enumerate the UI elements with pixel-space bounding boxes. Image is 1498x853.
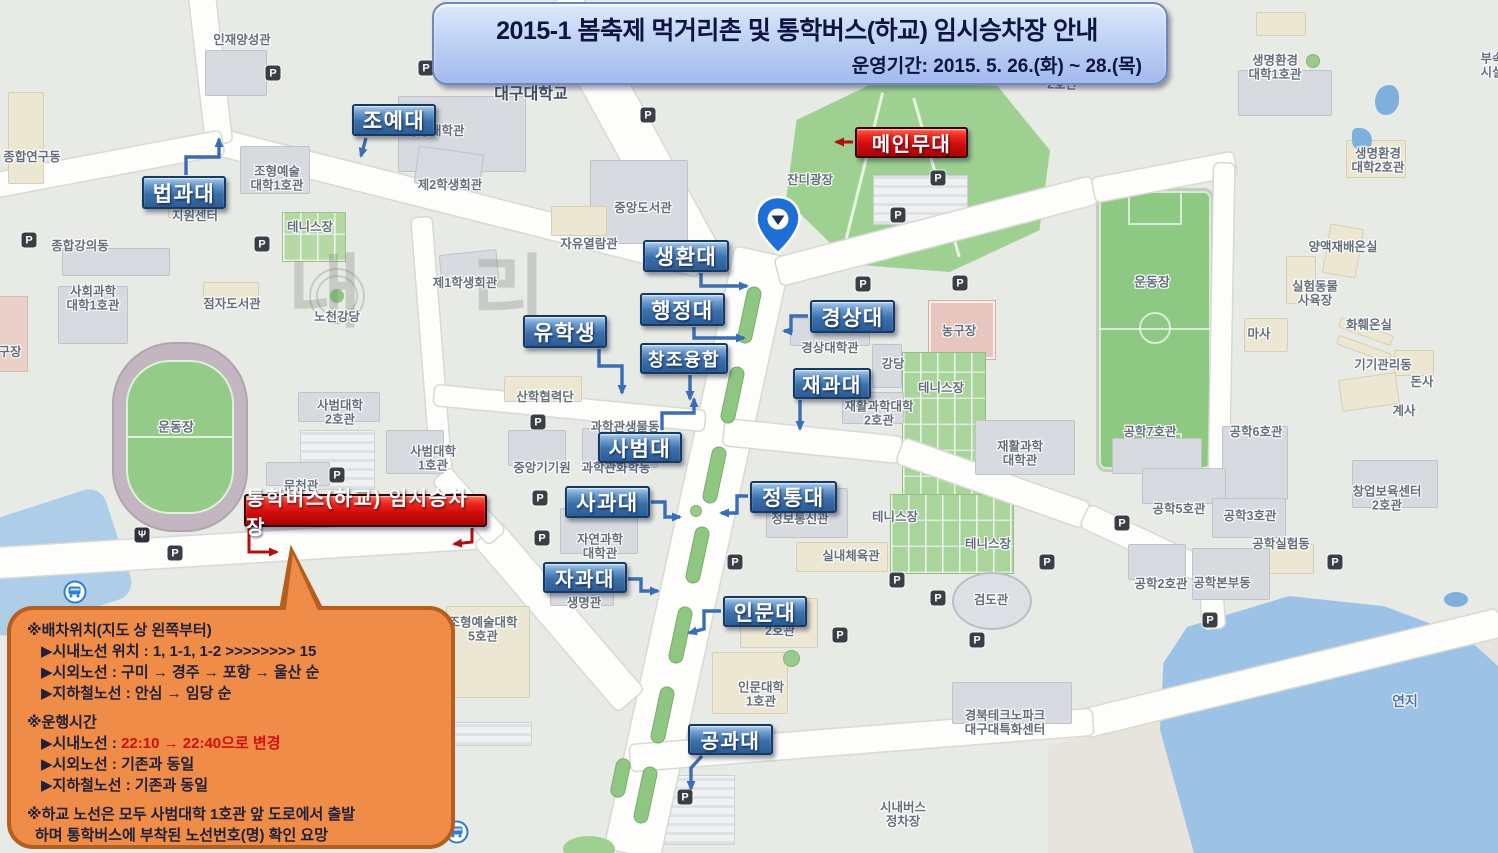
map-label: 종합강의동 — [51, 239, 109, 253]
map-label: 인문대학1호관 — [738, 681, 784, 710]
map-label: 조형예술대학1호관 — [251, 165, 304, 194]
map-label: 공학5호관 — [1153, 502, 1206, 516]
parking-icon: P — [678, 790, 693, 805]
college-label: 공과대 — [688, 724, 773, 755]
college-label: 유학생 — [523, 315, 607, 348]
map-label: 양액재배온실 — [1308, 240, 1377, 254]
map-label: 제1학생회관 — [433, 276, 497, 290]
map-label: 부속시설 — [1480, 52, 1498, 81]
building — [1192, 548, 1270, 600]
map-label: 경상대학관 — [801, 341, 859, 355]
college-label: 생환대 — [643, 240, 729, 272]
college-label: 창조융합 — [640, 343, 728, 374]
tennis-court-lower — [890, 494, 1014, 574]
parking-icon: P — [266, 66, 281, 81]
map-label: 정보통신관 — [771, 512, 829, 526]
map-label: 지원센터 — [172, 209, 218, 223]
stadium-right-circle — [1139, 312, 1171, 344]
map-label: 돈사 — [1410, 375, 1433, 389]
map-label: 조형예술대학5호관 — [448, 616, 517, 645]
map-label: 검도관 — [974, 593, 1009, 607]
map-label: 공학본부동 — [1193, 576, 1251, 590]
college-label: 정통대 — [750, 481, 837, 513]
map-label: 마사 — [1247, 327, 1270, 341]
event-label: 통학버스(하교) 임시승차장 — [244, 494, 487, 527]
poster-period: 운영기간: 2015. 5. 26.(화) ~ 28.(목) — [452, 51, 1142, 78]
college-label: 사범대 — [598, 432, 682, 463]
callout-text: ※배차위치(지도 상 왼쪽부터)▶시내노선 위치 : 1, 1-1, 1-2 >… — [27, 620, 441, 846]
map-label: 테니스장 — [287, 220, 333, 234]
college-label: 행정대 — [640, 293, 725, 326]
callout-line: ※운행시간 — [27, 712, 441, 733]
map-label: 농구장 — [942, 324, 977, 338]
map-label: 생명환경대학2호관 — [1352, 147, 1405, 176]
map-label: 생명환경대학1호관 — [1249, 54, 1302, 83]
info-callout: ※배차위치(지도 상 왼쪽부터)▶시내노선 위치 : 1, 1-1, 1-2 >… — [7, 606, 455, 849]
map-label: 공학3호관 — [1224, 509, 1277, 523]
map-label: 연지 — [1392, 693, 1418, 709]
campus-map-poster: 내 리 대구대학교인재양성관신애학사3호관조형예술대학2호관법행정대학관종합연구… — [0, 0, 1498, 853]
poster-title: 2015-1 봄축제 먹거리촌 및 통학버스(하교) 임시승차장 안내 — [452, 11, 1142, 47]
map-label: 테니스장 — [918, 381, 964, 395]
map-label: 자유열람관 — [560, 237, 618, 251]
map-label: 기기관리동 — [1354, 358, 1412, 372]
parking-icon: P — [890, 573, 905, 588]
callout-line: ▶시내노선 위치 : 1, 1-1, 1-2 >>>>>>>> 15 — [27, 641, 441, 662]
parking-icon: P — [833, 628, 848, 643]
parking-icon: P — [1328, 555, 1343, 570]
parking-icon: P — [535, 531, 550, 546]
map-label: 구장 — [0, 345, 22, 359]
parking-icon: P — [1115, 516, 1130, 531]
college-label: 조예대 — [352, 104, 436, 136]
map-label: 공학6호관 — [1230, 425, 1283, 439]
college-label: 법과대 — [142, 176, 226, 209]
map-label: 사회과학대학1호관 — [67, 285, 120, 314]
callout-line: ▶지하철노선 : 안심 → 임당 순 — [27, 683, 441, 704]
parking-icon: P — [168, 546, 183, 561]
tree — [1306, 54, 1320, 68]
parking-icon: P — [931, 171, 946, 186]
callout-line: ▶시외노선 : 구미 → 경주 → 포항 → 울산 순 — [27, 662, 441, 683]
map-label: 경북테크노파크대구대특화센터 — [965, 709, 1046, 738]
building — [205, 50, 267, 96]
map-label: 실내체육관 — [822, 549, 880, 563]
stadium-left-midline — [128, 436, 232, 438]
tree — [690, 505, 702, 517]
callout-line: ▶지하철노선 : 기존과 동일 — [27, 775, 441, 796]
map-label: 인재양성관 — [213, 33, 271, 47]
tree — [783, 650, 800, 667]
parking-icon: P — [856, 277, 871, 292]
map-label: 산학협력단 — [516, 390, 574, 404]
map-label: 노천강당 — [314, 310, 360, 324]
bus-stop-icon — [64, 581, 87, 604]
map-label: 사범대학2호관 — [317, 399, 363, 428]
map-label: 재활과학대학관 — [997, 440, 1043, 469]
parking-icon: P — [641, 108, 656, 123]
map-label: 종합연구동 — [3, 150, 61, 164]
parking-icon: P — [255, 237, 270, 252]
college-label: 사과대 — [565, 486, 650, 518]
college-label: 경상대 — [810, 300, 895, 333]
map-label: 중앙기기원 — [513, 461, 571, 475]
college-label: 재과대 — [793, 368, 871, 399]
college-label: 자과대 — [543, 562, 627, 593]
stadium-right-box-top — [1128, 191, 1182, 225]
callout-line: ▶시외노선 : 기존과 동일 — [27, 754, 441, 775]
map-label: 테니스장 — [872, 510, 918, 524]
bus-glyph — [69, 587, 81, 595]
map-label: 재활과학대학2호관 — [844, 400, 913, 429]
callout-line: ▶시내노선 : 22:10 → 22:40으로 변경 — [27, 733, 441, 754]
map-label: 중앙도서관 — [614, 201, 672, 215]
map-label: 공학실험동 — [1252, 537, 1310, 551]
map-label: 대구대학교 — [494, 86, 568, 104]
map-label: 공학7호관 — [1124, 425, 1177, 439]
parking-icon: P — [531, 415, 546, 430]
parking-icon: P — [931, 591, 946, 606]
map-label: 공학2호관 — [1135, 577, 1188, 591]
parking-lot — [452, 722, 532, 746]
map-label: 자연과학대학관 — [577, 533, 623, 562]
map-label: 테니스장 — [965, 537, 1011, 551]
map-label: 운동장 — [1134, 276, 1170, 291]
event-label: 메인무대 — [855, 127, 968, 158]
parking-icon: P — [728, 555, 743, 570]
pond-small-3 — [1444, 592, 1468, 607]
map-label: 운동장 — [158, 421, 194, 436]
building — [1256, 12, 1306, 36]
callout-line: ※하교 노선은 모두 사범대학 1호관 앞 도로에서 출발 — [27, 804, 441, 825]
map-label: 시내버스정차장 — [880, 801, 926, 830]
building — [8, 92, 44, 184]
map-label: 화훼온실 — [1346, 318, 1392, 332]
parking-icon: P — [1203, 613, 1218, 628]
callout-line: 하며 통학버스에 부착된 노선번호(명) 확인 요망 — [27, 825, 441, 846]
map-label: 잔디광장 — [787, 173, 833, 187]
callout-tail — [281, 553, 319, 615]
map-label: 제2학생회관 — [418, 178, 482, 192]
map-label: 창업보육센터2호관 — [1352, 485, 1421, 514]
building — [1128, 544, 1186, 580]
parking-icon: P — [953, 276, 968, 291]
map-label: 생명관 — [567, 596, 602, 610]
parking-icon: P — [1040, 555, 1055, 570]
callout-line: ※배차위치(지도 상 왼쪽부터) — [27, 620, 441, 641]
restaurant-icon: Ψ — [135, 528, 150, 543]
map-label: 점자도서관 — [203, 297, 261, 311]
parking-icon: P — [891, 208, 906, 223]
college-label: 인문대 — [723, 596, 807, 627]
map-label: 강당 — [881, 357, 904, 371]
map-label: 실험동물사육장 — [1292, 280, 1338, 309]
parking-icon: P — [330, 468, 345, 483]
title-banner: 2015-1 봄축제 먹거리촌 및 통학버스(하교) 임시승차장 안내 운영기간… — [432, 2, 1168, 85]
parking-icon: P — [970, 633, 985, 648]
map-label: 계사 — [1392, 404, 1415, 418]
parking-icon: P — [22, 233, 37, 248]
parking-icon: P — [533, 491, 548, 506]
map-label: 사범대학1호관 — [410, 445, 456, 474]
